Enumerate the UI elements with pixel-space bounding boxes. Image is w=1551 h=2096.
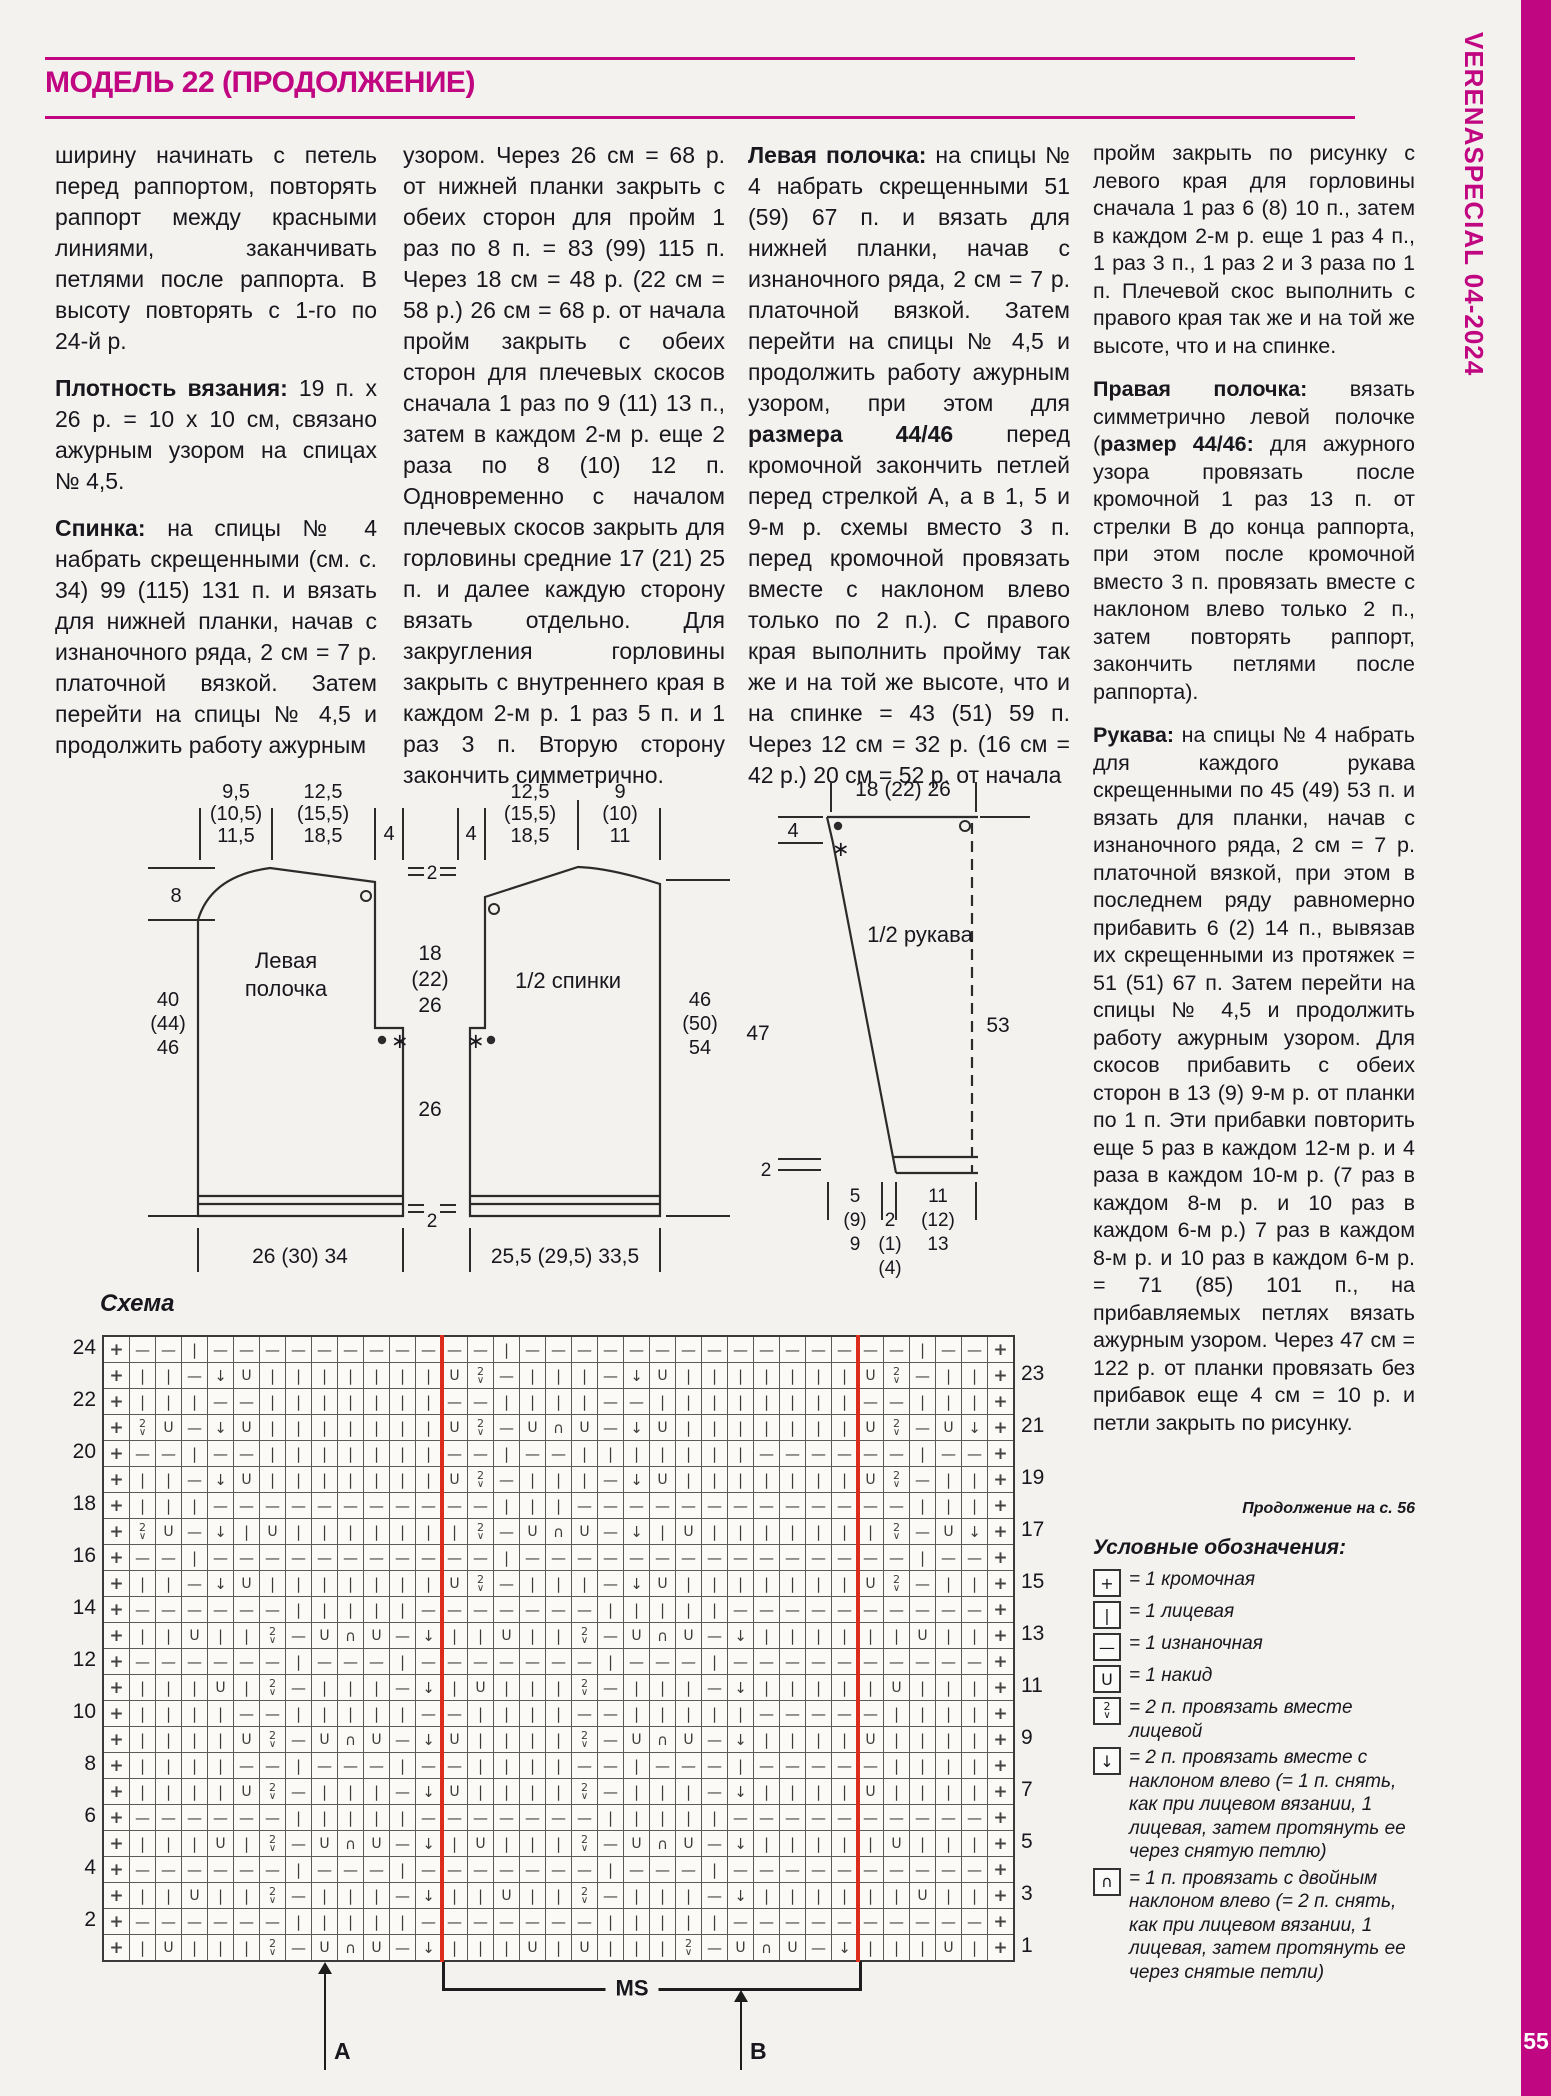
chart-cell: U <box>520 1935 545 1960</box>
row-number-right <box>1015 1335 1047 1360</box>
paragraph: Левая полочка: на спицы № 4 набрать скре… <box>748 140 1070 791</box>
chart-cell: | <box>494 1493 519 1518</box>
front-bottom-width: 26 (30) 34 <box>252 1245 348 1268</box>
chart-cell: — <box>832 1909 857 1934</box>
chart-cell: | <box>156 1623 181 1648</box>
chart-cell: | <box>962 1701 987 1726</box>
row-number-right <box>1015 1699 1047 1724</box>
chart-cell: U <box>234 1571 259 1596</box>
row-number-left <box>70 1569 102 1594</box>
chart-cell: 2∨ <box>572 1883 597 1908</box>
chart-cell: 2∨ <box>572 1727 597 1752</box>
chart-cell: | <box>234 1883 259 1908</box>
sleeve-star-marker: ∗ <box>832 838 850 861</box>
chart-cell: | <box>130 1623 155 1648</box>
chart-cell: | <box>650 1909 675 1934</box>
row-number-right: 1 <box>1015 1933 1047 1958</box>
chart-cell: | <box>676 1909 701 1934</box>
chart-cell: | <box>598 1597 623 1622</box>
chart-cell: | <box>572 1363 597 1388</box>
chart-cell: | <box>780 1467 805 1492</box>
chart-cell: | <box>286 1415 311 1440</box>
chart-cell: | <box>936 1883 961 1908</box>
chart-cell: | <box>780 1389 805 1414</box>
chart-cell: | <box>910 1753 935 1778</box>
chart-cell: — <box>416 1337 441 1362</box>
paragraph: Плотность вязания: 19 п. х 26 р. = 10 х … <box>55 373 377 497</box>
row-number-left: 22 <box>70 1387 102 1412</box>
chart-cell: | <box>546 1883 571 1908</box>
chart-cell: | <box>130 1831 155 1856</box>
chart-cell: | <box>650 1779 675 1804</box>
chart-cell: — <box>286 1831 311 1856</box>
chart-cell: | <box>598 1441 623 1466</box>
page-number: 55 <box>1521 2028 1551 2055</box>
row-number-right <box>1015 1595 1047 1620</box>
chart-cell: — <box>520 1337 545 1362</box>
chart-cell: — <box>884 1493 909 1518</box>
chart-cell: | <box>962 1779 987 1804</box>
chart-cell: | <box>936 1701 961 1726</box>
chart-cell: U <box>572 1519 597 1544</box>
chart-cell: — <box>806 1753 831 1778</box>
chart-cell: — <box>312 1493 337 1518</box>
legend-text: = 1 кромочная <box>1129 1568 1255 1592</box>
chart-cell: — <box>130 1805 155 1830</box>
chart-cell: | <box>962 1831 987 1856</box>
chart-cell: — <box>286 1545 311 1570</box>
chart-cell: | <box>962 1571 987 1596</box>
sleeve-band-width: 4 <box>787 820 798 842</box>
chart-cell: — <box>442 1389 467 1414</box>
chart-cell: — <box>858 1649 883 1674</box>
chart-cell: | <box>156 1753 181 1778</box>
chart-cell: | <box>494 1753 519 1778</box>
chart-cell: | <box>962 1753 987 1778</box>
chart-cell: | <box>234 1831 259 1856</box>
chart-cell: U <box>312 1727 337 1752</box>
sleeve-outline <box>827 817 978 1173</box>
chart-cell: 2∨ <box>884 1571 909 1596</box>
chart-cell: + <box>988 1935 1013 1960</box>
chart-cell: | <box>312 1363 337 1388</box>
chart-cell: — <box>364 1337 389 1362</box>
row-number-right: 17 <box>1015 1517 1047 1542</box>
chart-cell: | <box>832 1727 857 1752</box>
legend-item: ↓= 2 п. провязать вместе с наклоном влев… <box>1093 1746 1415 1864</box>
chart-cell: | <box>754 1623 779 1648</box>
row-number-right <box>1015 1751 1047 1776</box>
chart-cell: + <box>104 1675 129 1700</box>
chart-cell: U <box>624 1623 649 1648</box>
chart-cell: | <box>494 1675 519 1700</box>
chart-cell: | <box>390 1649 415 1674</box>
chart-cell: | <box>546 1779 571 1804</box>
chart-cell: | <box>962 1389 987 1414</box>
gap-top-2: 2 <box>427 863 438 884</box>
chart-cell: | <box>390 1467 415 1492</box>
chart-cell: | <box>624 1935 649 1960</box>
chart-cell: — <box>468 1389 493 1414</box>
chart-cell: | <box>910 1779 935 1804</box>
chart-cell: U <box>858 1467 883 1492</box>
row-number-left <box>70 1361 102 1386</box>
chart-cell: + <box>104 1623 129 1648</box>
chart-cell: | <box>884 1883 909 1908</box>
chart-cell: — <box>884 1545 909 1570</box>
garment-schematic: ∗ ∗ ∗ 9,5 (10,5) 11,5 12,5 (15,5) 18,5 4… <box>90 780 1070 1290</box>
chart-cell: ↓ <box>728 1727 753 1752</box>
chart-cell: — <box>494 1909 519 1934</box>
chart-cell: | <box>468 1701 493 1726</box>
chart-cell: | <box>806 1883 831 1908</box>
chart-cell: | <box>182 1545 207 1570</box>
chart-cell: ↓ <box>962 1519 987 1544</box>
sleeve-w3-1: 11 <box>928 1186 948 1207</box>
chart-cell: — <box>702 1831 727 1856</box>
chart-cell: | <box>754 1363 779 1388</box>
gap-neck-2: (22) <box>411 968 448 991</box>
chart-cell: — <box>910 1415 935 1440</box>
chart-cell: | <box>286 1597 311 1622</box>
chart-cell: — <box>858 1753 883 1778</box>
chart-cell: — <box>806 1935 831 1960</box>
chart-cell: — <box>390 1623 415 1648</box>
chart-cell: | <box>650 1935 675 1960</box>
chart-cell: | <box>338 1701 363 1726</box>
chart-cell: — <box>858 1597 883 1622</box>
row-number-right <box>1015 1439 1047 1464</box>
chart-cell: U <box>676 1519 701 1544</box>
chart-cell: — <box>390 1727 415 1752</box>
chart-cell: — <box>520 1857 545 1882</box>
chart-cell: — <box>572 1857 597 1882</box>
chart-cell: — <box>208 1857 233 1882</box>
chart-cell: | <box>364 1675 389 1700</box>
chart-cell: — <box>494 1519 519 1544</box>
chart-cell: U <box>234 1415 259 1440</box>
chart-cell: — <box>832 1805 857 1830</box>
chart-cell: — <box>832 1649 857 1674</box>
chart-cell: + <box>104 1493 129 1518</box>
chart-cell: | <box>676 1883 701 1908</box>
chart-cell: | <box>702 1467 727 1492</box>
chart-cell: — <box>442 1805 467 1830</box>
chart-cell: — <box>806 1493 831 1518</box>
row-number-right: 13 <box>1015 1621 1047 1646</box>
chart-cell: | <box>832 1831 857 1856</box>
chart-cell: — <box>442 1337 467 1362</box>
chart-cell: + <box>104 1727 129 1752</box>
chart-cell: | <box>494 1389 519 1414</box>
chart-cell: | <box>832 1467 857 1492</box>
chart-cell: — <box>754 1337 779 1362</box>
chart-cell: | <box>494 1337 519 1362</box>
chart-cell: | <box>702 1597 727 1622</box>
legend-item: += 1 кромочная <box>1093 1568 1415 1597</box>
chart-cell: — <box>442 1441 467 1466</box>
chart-cell: U <box>364 1727 389 1752</box>
chart-cell: | <box>208 1701 233 1726</box>
chart-cell: — <box>780 1805 805 1830</box>
legend-text: = 1 накид <box>1129 1664 1212 1688</box>
back-circle-marker <box>489 904 499 914</box>
chart-cell: | <box>312 1883 337 1908</box>
chart-cell: | <box>468 1883 493 1908</box>
chart-cell: | <box>520 1883 545 1908</box>
legend-item: U= 1 накид <box>1093 1664 1415 1693</box>
chart-cell: — <box>572 1805 597 1830</box>
sleeve-top-width: 18 (22) 26 <box>855 780 951 801</box>
chart-cell: — <box>598 1883 623 1908</box>
chart-cell: 2∨ <box>468 1363 493 1388</box>
chart-cell: — <box>910 1467 935 1492</box>
front-star-marker: ∗ <box>391 1030 409 1053</box>
chart-cell: — <box>572 1545 597 1570</box>
chart-cell: | <box>312 1805 337 1830</box>
chart-cell: — <box>936 1441 961 1466</box>
chart-cell: | <box>728 1441 753 1466</box>
chart-cell: — <box>442 1857 467 1882</box>
chart-cell: — <box>572 1753 597 1778</box>
chart-cell: | <box>936 1779 961 1804</box>
chart-cell: | <box>780 1363 805 1388</box>
chart-cell: — <box>702 1623 727 1648</box>
chart-cell: | <box>338 1909 363 1934</box>
chart-cell: | <box>546 1363 571 1388</box>
sleeve-label: 1/2 рукава <box>867 922 973 947</box>
front-neck-size-3: 11,5 <box>217 825 254 847</box>
chart-cell: + <box>104 1337 129 1362</box>
header-rule-bottom <box>45 116 1355 119</box>
row-number-right: 9 <box>1015 1725 1047 1750</box>
row-number-left <box>70 1621 102 1646</box>
chart-cell: ∩ <box>650 1727 675 1752</box>
chart-cell: U <box>364 1935 389 1960</box>
ms-bracket-left <box>442 1961 445 1991</box>
chart-cell: | <box>208 1779 233 1804</box>
chart-cell: — <box>624 1493 649 1518</box>
chart-cell: — <box>156 1337 181 1362</box>
chart-row-numbers-right: 2321191715131197531 <box>1015 1335 1047 1962</box>
chart-cell: | <box>962 1935 987 1960</box>
chart-cell: U <box>624 1831 649 1856</box>
rapport-line-right <box>856 1335 860 1962</box>
chart-cell: | <box>650 1389 675 1414</box>
chart-cell: | <box>182 1831 207 1856</box>
chart-cell: — <box>338 1649 363 1674</box>
row-number-right: 7 <box>1015 1777 1047 1802</box>
row-number-left <box>70 1881 102 1906</box>
chart-cell: U <box>650 1467 675 1492</box>
chart-cell: ↓ <box>728 1779 753 1804</box>
knitting-chart: Схема 24222018161412108642 +——|—————————… <box>70 1290 1120 2090</box>
front-label-2: полочка <box>245 976 328 1001</box>
chart-cell: — <box>234 1545 259 1570</box>
chart-cell: | <box>390 1571 415 1596</box>
chart-cell: | <box>312 1909 337 1934</box>
chart-cell: U <box>650 1363 675 1388</box>
chart-cell: — <box>962 1337 987 1362</box>
chart-cell: ∩ <box>650 1831 675 1856</box>
chart-cell: — <box>156 1805 181 1830</box>
sleeve-w2-3: (4) <box>878 1258 901 1279</box>
front-outline <box>198 868 403 1216</box>
chart-cell: | <box>832 1389 857 1414</box>
chart-cell: — <box>598 1467 623 1492</box>
chart-cell: U <box>650 1415 675 1440</box>
chart-cell: | <box>442 1623 467 1648</box>
chart-cell: — <box>676 1545 701 1570</box>
chart-cell: | <box>312 1675 337 1700</box>
chart-cell: — <box>208 1597 233 1622</box>
chart-cell: | <box>702 1701 727 1726</box>
chart-cell: 2∨ <box>260 1623 285 1648</box>
chart-cell: — <box>780 1441 805 1466</box>
chart-cell: | <box>520 1779 545 1804</box>
chart-cell: U <box>312 1623 337 1648</box>
chart-cell: | <box>624 1805 649 1830</box>
chart-cell: — <box>910 1571 935 1596</box>
legend: += 1 кромочная|= 1 лицевая—= 1 изнаночна… <box>1093 1568 1415 1984</box>
chart-cell: | <box>754 1831 779 1856</box>
chart-cell: U <box>780 1935 805 1960</box>
chart-cell: U <box>728 1935 753 1960</box>
paragraph: пройм закрыть по рисунку с левого края д… <box>1093 140 1415 360</box>
chart-cell: 2∨ <box>130 1519 155 1544</box>
chart-cell: ∩ <box>546 1415 571 1440</box>
chart-cell: | <box>182 1753 207 1778</box>
chart-cell: | <box>390 1363 415 1388</box>
chart-cell: — <box>832 1753 857 1778</box>
chart-cell: | <box>910 1441 935 1466</box>
chart-cell: | <box>702 1389 727 1414</box>
chart-cell: | <box>130 1883 155 1908</box>
front-band-width: 4 <box>383 823 394 845</box>
sleeve-w2-2: (1) <box>878 1234 901 1255</box>
chart-cell: | <box>754 1779 779 1804</box>
chart-cell: + <box>104 1883 129 1908</box>
chart-cell: | <box>468 1727 493 1752</box>
chart-cell: — <box>650 1857 675 1882</box>
chart-cell: | <box>910 1727 935 1752</box>
chart-cell: ↓ <box>416 1727 441 1752</box>
chart-cell: | <box>702 1649 727 1674</box>
chart-cell: | <box>286 1649 311 1674</box>
chart-cell: — <box>780 1649 805 1674</box>
chart-cell: | <box>494 1935 519 1960</box>
chart-cell: | <box>130 1493 155 1518</box>
chart-cell: — <box>182 1805 207 1830</box>
chart-cell: — <box>520 1909 545 1934</box>
sleeve-left-length: 47 <box>746 1022 769 1045</box>
chart-cell: | <box>806 1363 831 1388</box>
chart-cell: | <box>728 1415 753 1440</box>
chart-cell: | <box>962 1727 987 1752</box>
chart-cell: | <box>728 1467 753 1492</box>
chart-cell: | <box>520 1701 545 1726</box>
sleeve-w1-3: 9 <box>850 1234 861 1255</box>
chart-cell: | <box>338 1571 363 1596</box>
chart-cell: | <box>312 1415 337 1440</box>
chart-cell: | <box>702 1909 727 1934</box>
chart-cell: | <box>650 1441 675 1466</box>
row-number-right: 21 <box>1015 1413 1047 1438</box>
chart-cell: | <box>286 1753 311 1778</box>
chart-cell: — <box>442 1493 467 1518</box>
chart-cell: + <box>104 1909 129 1934</box>
chart-cell: | <box>390 1753 415 1778</box>
chart-cell: — <box>260 1753 285 1778</box>
chart-cell: — <box>572 1597 597 1622</box>
chart-cell: — <box>156 1545 181 1570</box>
chart-cell: | <box>650 1597 675 1622</box>
row-number-right <box>1015 1491 1047 1516</box>
chart-cell: ↓ <box>208 1363 233 1388</box>
chart-cell: | <box>702 1363 727 1388</box>
chart-cell: ↓ <box>728 1883 753 1908</box>
chart-cell: — <box>182 1857 207 1882</box>
chart-cell: | <box>650 1805 675 1830</box>
chart-cell: | <box>234 1623 259 1648</box>
chart-cell: | <box>676 1675 701 1700</box>
chart-cell: — <box>754 1493 779 1518</box>
chart-cell: U <box>208 1675 233 1700</box>
chart-cell: — <box>156 1597 181 1622</box>
chart-cell: | <box>494 1831 519 1856</box>
chart-cell: U <box>494 1623 519 1648</box>
chart-cell: | <box>338 1389 363 1414</box>
chart-cell: U <box>234 1779 259 1804</box>
header-rule-top <box>45 57 1355 60</box>
chart-cell: — <box>494 1571 519 1596</box>
chart-cell: — <box>468 1597 493 1622</box>
chart-cell: — <box>260 1493 285 1518</box>
chart-cell: — <box>702 1337 727 1362</box>
chart-cell: | <box>130 1935 155 1960</box>
chart-cell: | <box>364 1415 389 1440</box>
chart-cell: — <box>598 1727 623 1752</box>
chart-cell: | <box>806 1675 831 1700</box>
chart-cell: — <box>650 1753 675 1778</box>
row-number-left <box>70 1413 102 1438</box>
chart-cell: | <box>936 1675 961 1700</box>
chart-cell: — <box>442 1909 467 1934</box>
row-number-right: 15 <box>1015 1569 1047 1594</box>
chart-cell: + <box>988 1441 1013 1466</box>
arrow-b-line <box>740 1994 742 2070</box>
chart-cell: | <box>624 1909 649 1934</box>
chart-cell: | <box>520 1467 545 1492</box>
chart-cell: ↓ <box>416 1883 441 1908</box>
chart-cell: | <box>546 1571 571 1596</box>
chart-cell: — <box>468 1909 493 1934</box>
front-label-1: Левая <box>255 948 317 973</box>
chart-cell: | <box>312 1701 337 1726</box>
row-number-left <box>70 1517 102 1542</box>
chart-cell: — <box>598 1675 623 1700</box>
chart-cell: — <box>910 1649 935 1674</box>
chart-cell: 2∨ <box>572 1623 597 1648</box>
chart-cell: | <box>546 1675 571 1700</box>
chart-cell: — <box>390 1493 415 1518</box>
chart-cell: — <box>884 1857 909 1882</box>
chart-cell: + <box>988 1675 1013 1700</box>
chart-cell: — <box>494 1467 519 1492</box>
chart-cell: 2∨ <box>468 1467 493 1492</box>
chart-cell: — <box>832 1857 857 1882</box>
chart-cell: — <box>676 1857 701 1882</box>
